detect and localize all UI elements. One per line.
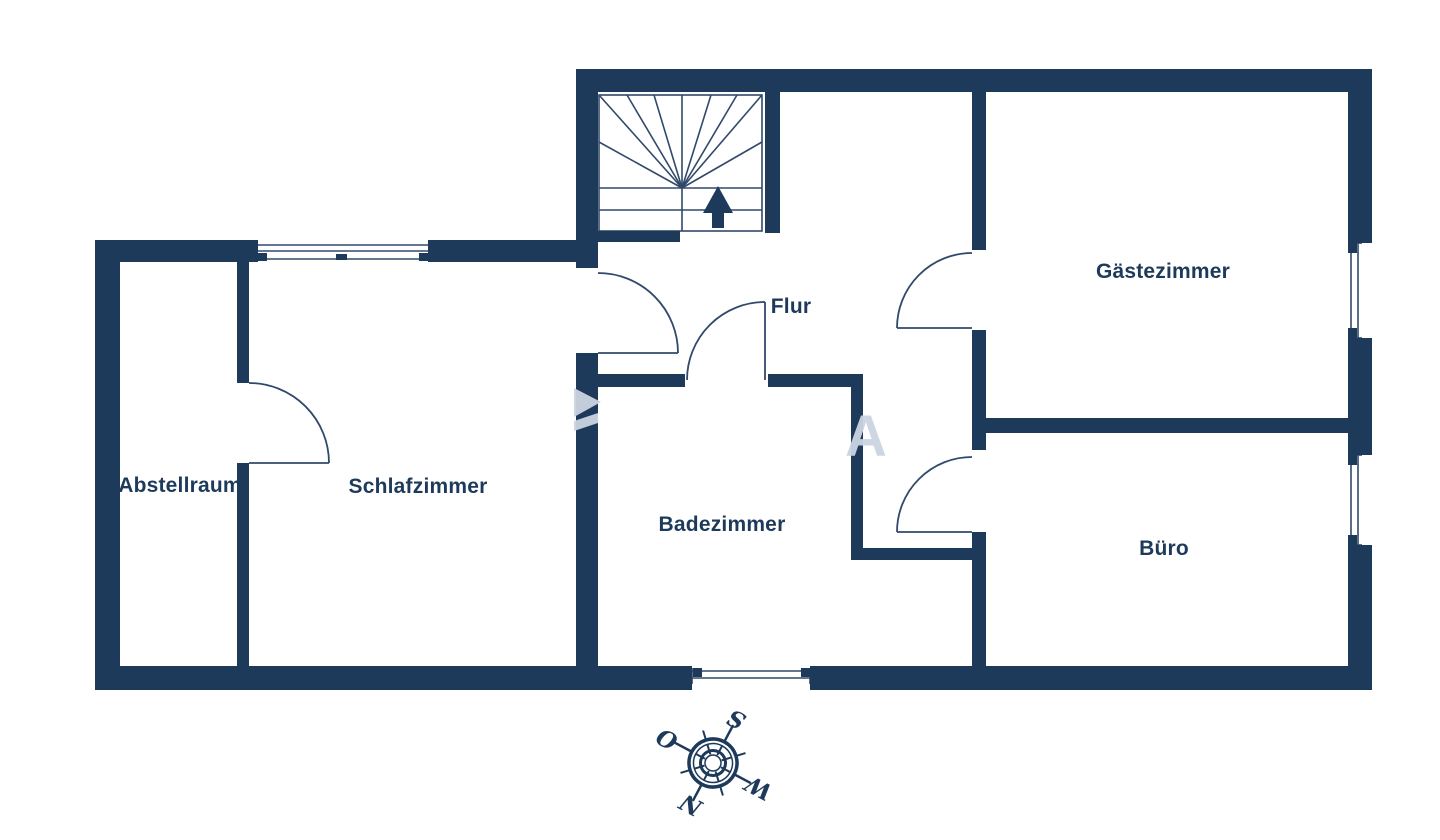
- staircase: [599, 95, 762, 231]
- wall-outer-right-2: [1348, 338, 1372, 455]
- compass-rose-icon: N O S W: [630, 678, 800, 840]
- wall-outer-left: [95, 240, 120, 690]
- compass-north-label: N: [674, 787, 707, 822]
- door-gaestezimmer: [897, 253, 972, 328]
- stair-treads: [599, 188, 762, 231]
- wall-top-left-a: [95, 240, 258, 262]
- wall-badezimmer-top-left: [590, 374, 685, 387]
- watermark-letter: A: [845, 404, 887, 469]
- window-badezimmer-bottom: [692, 668, 810, 684]
- wall-top-left-b: [428, 240, 598, 262]
- wall-abstellraum-upper: [237, 262, 249, 383]
- wall-flur-pocket-bottom: [851, 548, 985, 560]
- compass-east-label: O: [652, 722, 682, 755]
- door-abstellraum: [249, 383, 329, 463]
- compass-hub-outer: [696, 746, 730, 780]
- door-badezimmer: [687, 302, 765, 380]
- compass-hub-inner: [702, 752, 724, 774]
- room-label-schlafzimmer: Schlafzimmer: [349, 475, 488, 499]
- wall-badezimmer-top-right: [768, 374, 863, 387]
- wall-stair-base: [598, 231, 680, 242]
- compass-spokes: [687, 737, 740, 790]
- watermark: A: [574, 388, 887, 469]
- compass-inner-ring: [687, 737, 740, 790]
- door-buero: [897, 457, 972, 532]
- stair-winder-fan: [599, 95, 762, 188]
- wall-flur-east-middle: [972, 330, 986, 450]
- wall-stair-right: [765, 88, 780, 233]
- compass-letters: N O S W: [630, 678, 800, 840]
- window-buero-right: [1349, 455, 1362, 545]
- room-label-flur: Flur: [771, 295, 811, 319]
- room-label-buero: Büro: [1139, 537, 1189, 561]
- wall-gaestezimmer-buero: [985, 418, 1372, 433]
- door-schlafzimmer: [598, 273, 678, 353]
- wall-schlafzimmer-right-upper: [576, 69, 598, 268]
- room-label-abstellraum: Abstellraum: [118, 474, 242, 498]
- wall-outer-right-1: [1348, 69, 1372, 243]
- room-label-gaestezimmer: Gästezimmer: [1096, 260, 1230, 284]
- window-gaestezimmer-right: [1349, 243, 1362, 338]
- room-label-badezimmer: Badezimmer: [659, 513, 786, 537]
- up-arrow-icon: [703, 186, 733, 228]
- floor-plan-drawing: A: [0, 0, 1440, 840]
- floor-plan: A: [0, 0, 1440, 840]
- wall-flur-east-upper: [972, 88, 986, 250]
- wall-outer-bottom-left: [95, 666, 692, 690]
- compass-outer-ring: [681, 731, 746, 796]
- compass-west-label: W: [739, 768, 776, 805]
- wall-outer-bottom-right: [810, 666, 1372, 690]
- walls: [95, 69, 1372, 690]
- wall-flur-east-lower: [972, 532, 986, 666]
- thin-linework: [249, 95, 1362, 684]
- compass-cardinal-pointers: [655, 705, 771, 821]
- compass-south-label: S: [723, 703, 750, 735]
